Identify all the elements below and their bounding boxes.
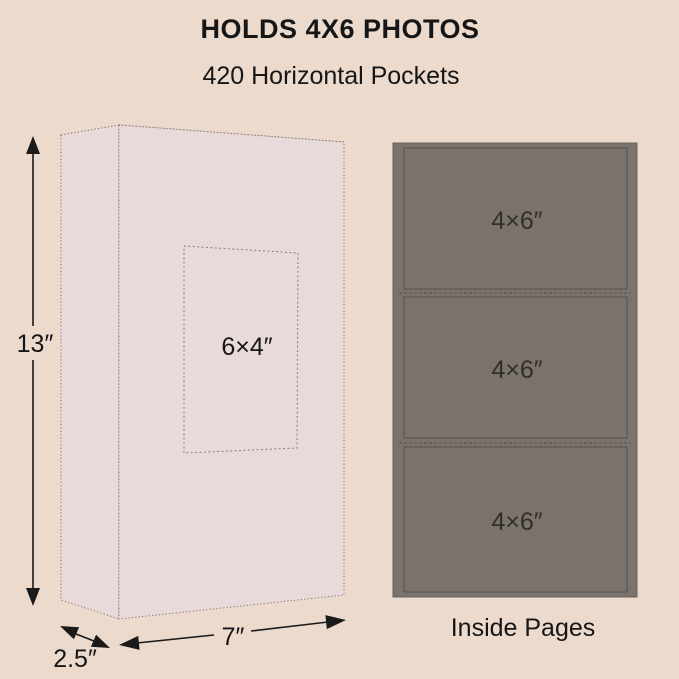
pocket-3-label: 4×6″ [491, 508, 542, 536]
inside-pages-panel: 4×6″ 4×6″ 4×6″ [393, 143, 637, 597]
photo-window-label: 6×4″ [221, 333, 272, 361]
height-dim-label: 13″ [17, 330, 54, 358]
album-front-face [119, 125, 344, 619]
pocket-2-label: 4×6″ [491, 356, 542, 384]
page-title: HOLDS 4X6 PHOTOS [200, 14, 479, 44]
infographic-canvas: HOLDS 4X6 PHOTOS 420 Horizontal Pockets … [0, 0, 679, 679]
inside-pages-caption: Inside Pages [451, 614, 596, 642]
page-subtitle: 420 Horizontal Pockets [202, 62, 459, 90]
diagram-svg: HOLDS 4X6 PHOTOS 420 Horizontal Pockets … [0, 0, 679, 679]
width-dim-label: 7″ [222, 623, 245, 651]
pocket-1-label: 4×6″ [491, 207, 542, 235]
album-box [61, 125, 344, 619]
album-spine-face [61, 125, 119, 619]
depth-dim-label: 2.5″ [53, 645, 97, 673]
